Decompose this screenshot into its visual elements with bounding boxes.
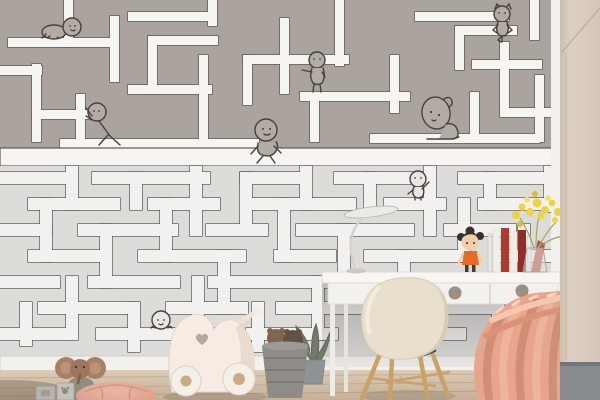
kids-room-photo (0, 0, 600, 400)
light-overlay (0, 0, 600, 400)
